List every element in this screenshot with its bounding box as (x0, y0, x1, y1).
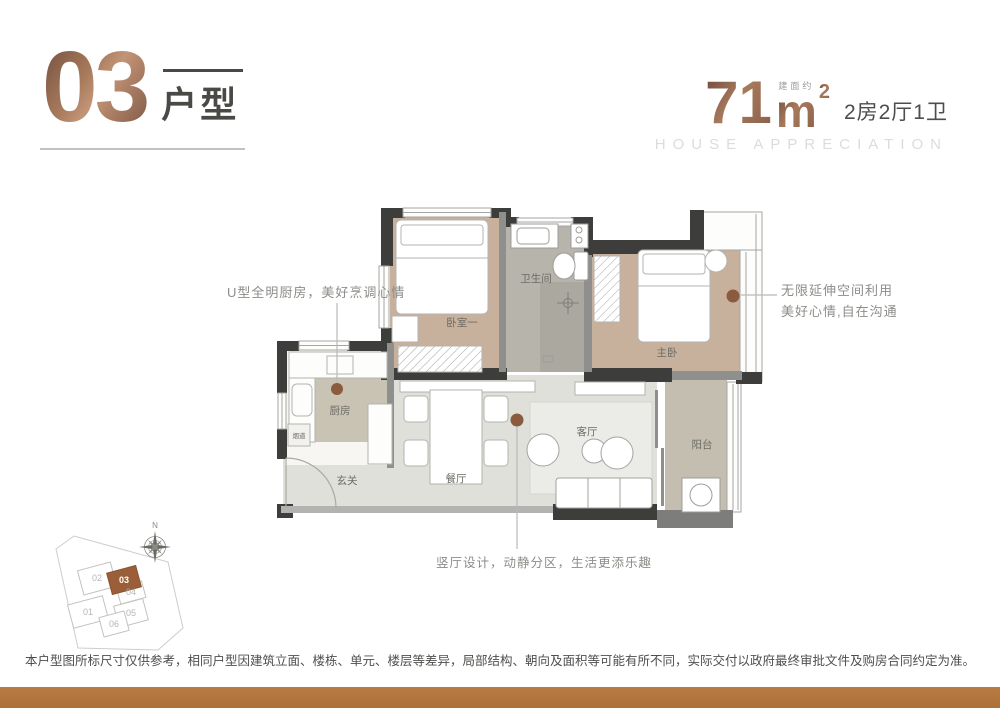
floorplan-drawing: 卧室一 卫生间 主卧 厨房 玄关 餐厅 客厅 阳台 烟道 02 03 (0, 0, 1000, 708)
label-entry: 玄关 (337, 474, 358, 487)
living-annotation: 竖厅设计，动静分区，生活更添乐趣 (436, 553, 652, 574)
living-dot (511, 414, 524, 427)
label-balcony: 阳台 (692, 438, 713, 451)
kitchen-dot (331, 383, 343, 395)
master-dot (727, 290, 740, 303)
label-dining: 餐厅 (446, 472, 467, 485)
master-annotation-line1: 无限延伸空间利用 (781, 280, 898, 301)
label-flue: 烟道 (293, 431, 307, 440)
site-label-06: 06 (109, 619, 119, 629)
balcony-fixtures (682, 478, 720, 512)
label-master: 主卧 (657, 346, 678, 359)
kitchen-annotation: U型全明厨房，美好烹调心情 (227, 282, 405, 303)
label-bedroom1: 卧室一 (446, 316, 478, 329)
site-label-04: 04 (126, 587, 136, 597)
site-label-02: 02 (92, 573, 102, 583)
bedroom1-furniture (392, 220, 488, 372)
disclaimer-text: 本户型图所标尺寸仅供参考，相同户型因建筑立面、楼栋、单元、楼层等差异，局部结构、… (0, 650, 1000, 669)
label-bathroom: 卫生间 (520, 272, 552, 285)
master-annotation: 无限延伸空间利用 美好心情,自在沟通 (781, 280, 898, 322)
label-living: 客厅 (577, 425, 598, 438)
label-kitchen: 厨房 (330, 404, 351, 417)
living-furniture (527, 402, 652, 508)
bottom-accent-bar (0, 687, 1000, 708)
site-label-01: 01 (83, 607, 93, 617)
compass-north-label: N (152, 521, 158, 530)
site-label-05: 05 (126, 608, 136, 618)
master-annotation-line2: 美好心情,自在沟通 (781, 301, 898, 322)
site-label-03: 03 (119, 575, 129, 585)
